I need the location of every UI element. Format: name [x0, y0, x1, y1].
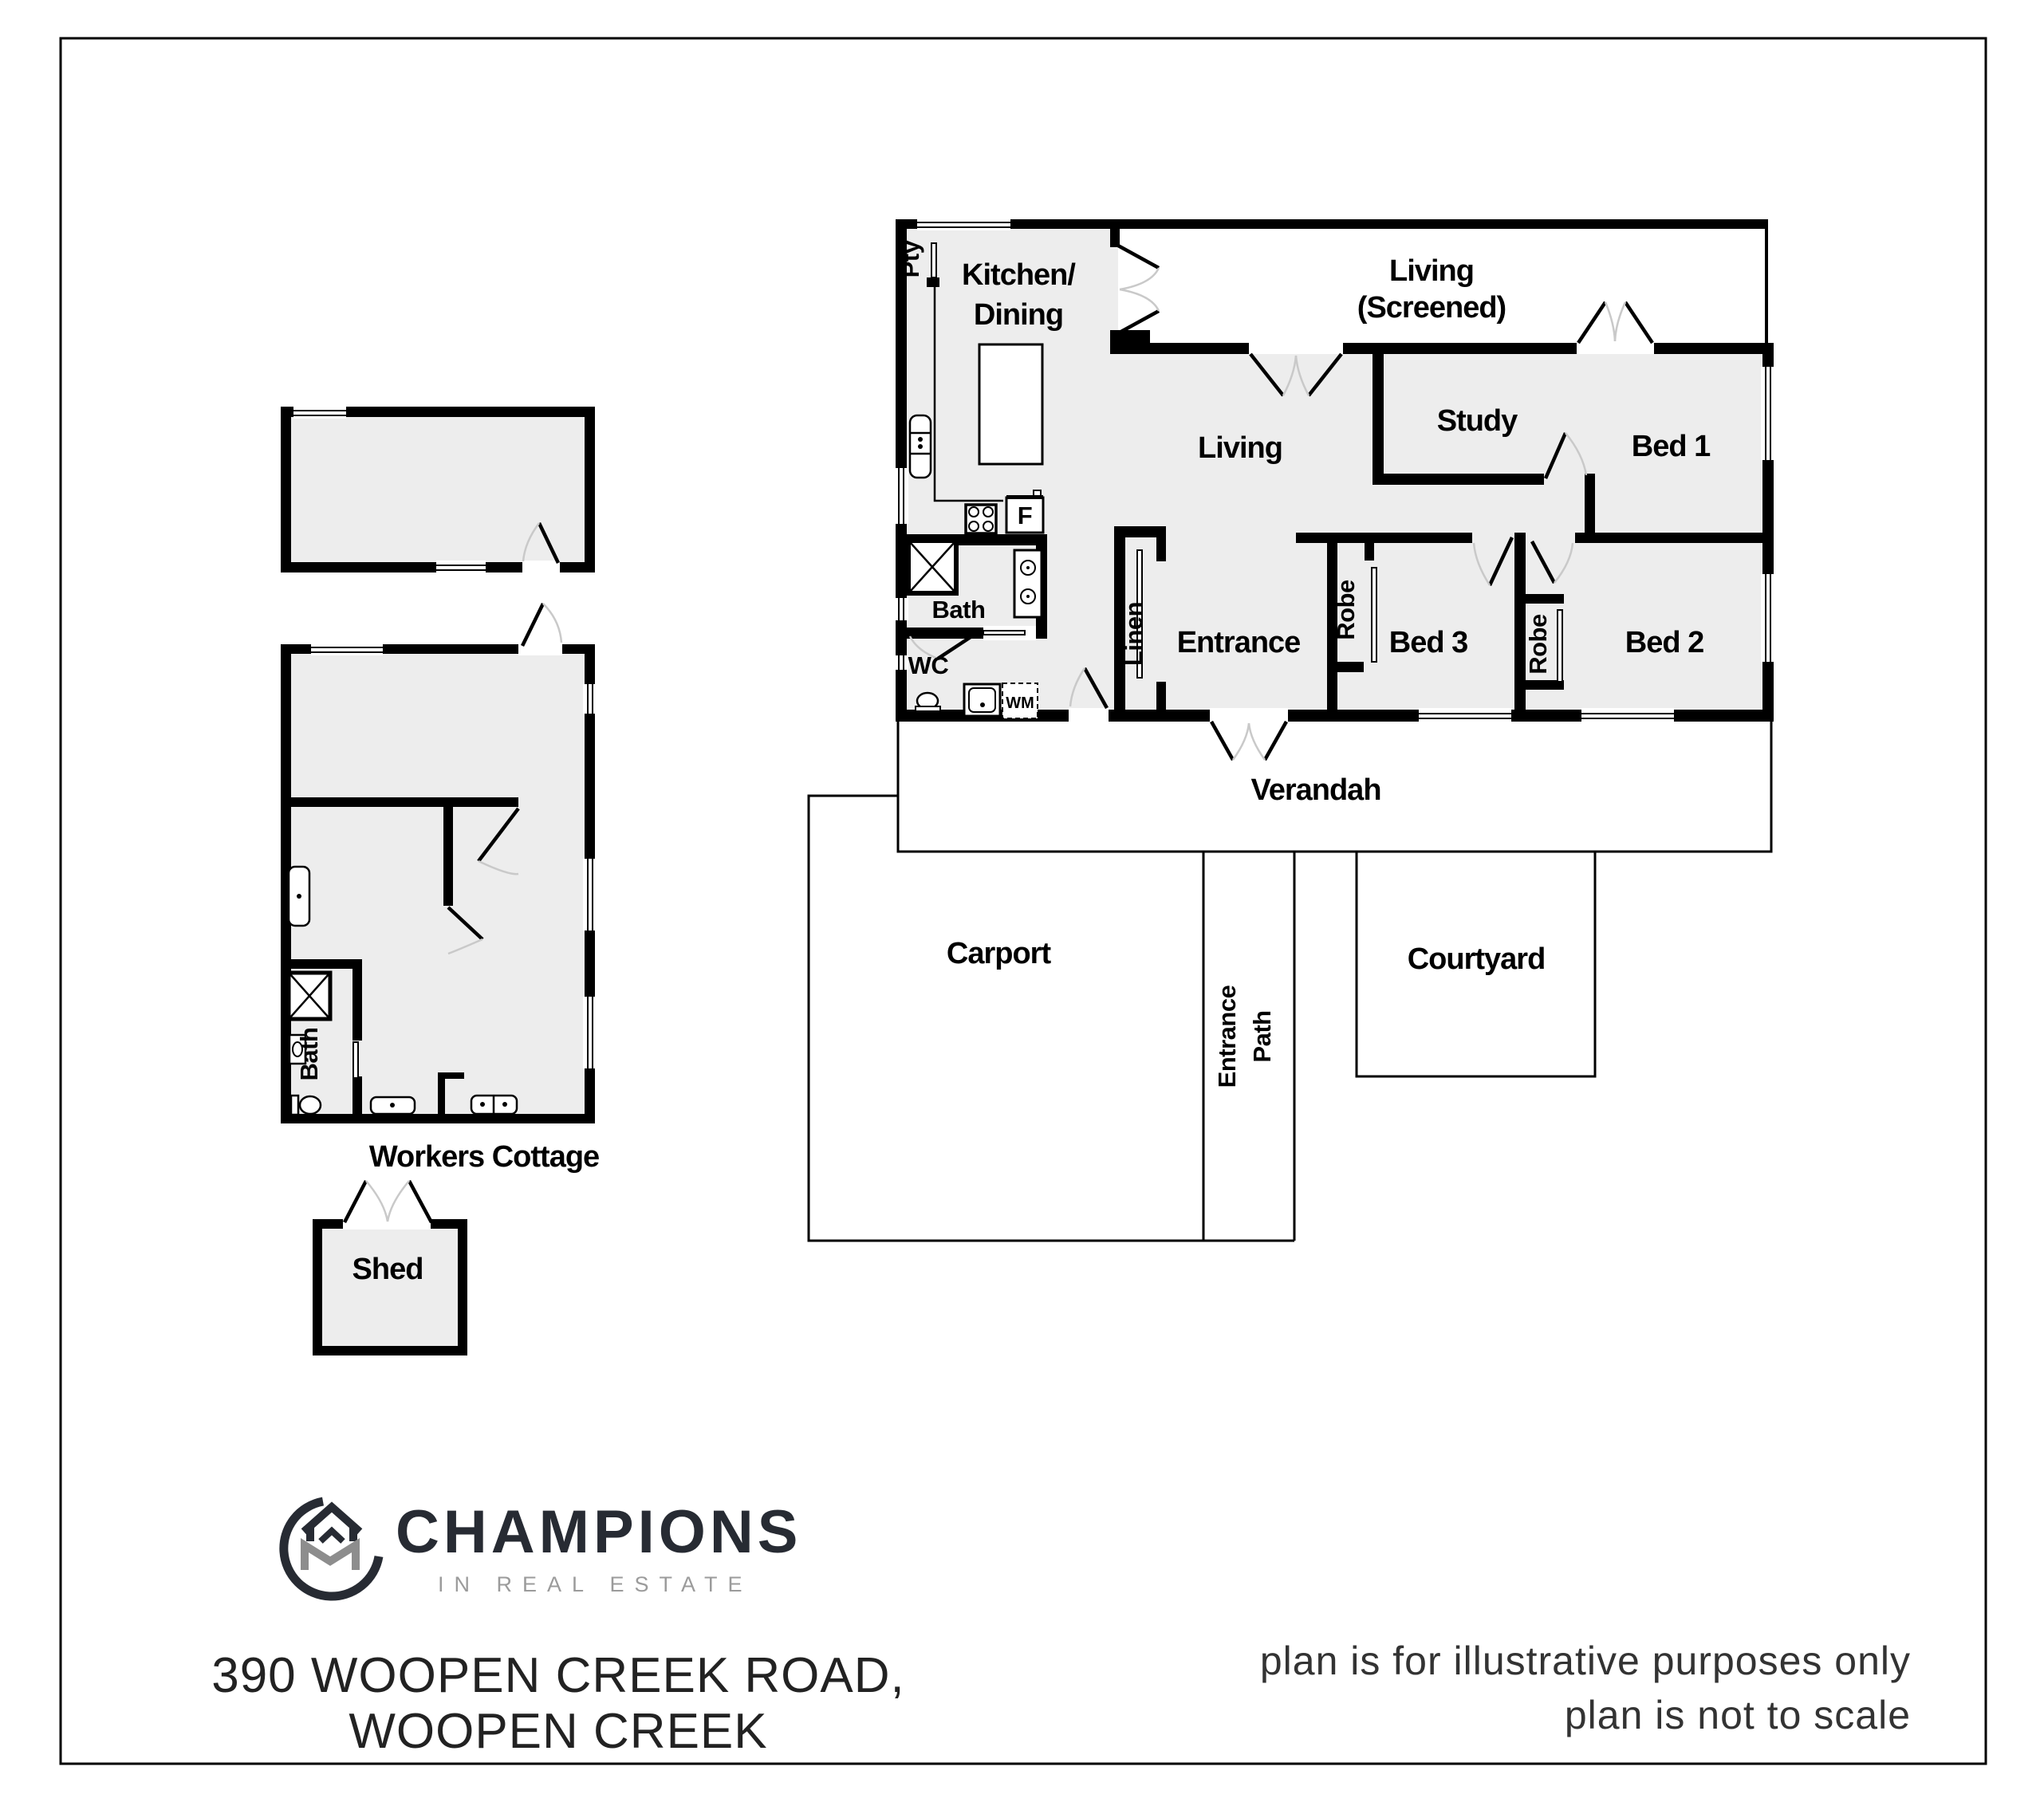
label-entrance-path-line1: Entrance [1213, 985, 1241, 1088]
laundry-sink-icon [964, 684, 1000, 716]
label-linen: Linen [1120, 602, 1148, 666]
label-cottage-bath: Bath [295, 1028, 323, 1081]
label-bath: Bath [932, 596, 986, 624]
label-bed2: Bed 2 [1625, 626, 1703, 659]
label-fridge: F [1018, 502, 1032, 529]
vanity-icon [1014, 550, 1042, 617]
floorplan-page: Pty Kitchen/ Dining Living (Screened) Li… [0, 0, 2044, 1802]
label-living: Living [1198, 431, 1282, 465]
address-line2: WOOPEN CREEK [349, 1704, 767, 1759]
brand-name: CHAMPIONS [396, 1498, 801, 1566]
cottage-wall-sink-icon [289, 867, 309, 926]
label-courtyard: Courtyard [1408, 942, 1546, 976]
label-entrance: Entrance [1177, 626, 1301, 659]
label-living-screened-line1: Living [1389, 254, 1474, 288]
disclaimer-line1: plan is for illustrative purposes only [1260, 1639, 1911, 1683]
label-pty: Pty [896, 239, 924, 277]
pantry-shelf [931, 243, 936, 277]
kitchen-door-unit [910, 415, 931, 478]
kitchen-island [979, 344, 1042, 464]
shower-icon [908, 541, 956, 593]
label-robe-bed2: Robe [1524, 614, 1552, 675]
label-bed1: Bed 1 [1632, 430, 1711, 463]
workers-cottage: Bath Workers Cottage [281, 405, 599, 1174]
cottage-structure-1 [281, 405, 595, 574]
label-carport: Carport [947, 937, 1052, 970]
label-shed: Shed [352, 1253, 423, 1286]
label-workers-cottage: Workers Cottage [369, 1140, 599, 1174]
label-wc: WC [908, 651, 949, 679]
cottage-structure-2: Bath [281, 604, 597, 1123]
disclaimer-line2: plan is not to scale [1565, 1693, 1911, 1737]
label-robe-bed3: Robe [1332, 580, 1360, 640]
cottage-shower-icon [289, 973, 330, 1019]
label-wm: WM [1006, 694, 1034, 712]
robe-bed3-shelf [1372, 568, 1376, 662]
address-line1: 390 WOOPEN CREEK ROAD, [211, 1648, 905, 1703]
stove-icon [966, 505, 996, 533]
label-kitchen-line2: Dining [974, 298, 1063, 332]
toilet-icon [916, 693, 940, 711]
brand-tagline: IN REAL ESTATE [438, 1572, 753, 1596]
label-study: Study [1437, 404, 1518, 438]
label-kitchen-line1: Kitchen/ [962, 258, 1076, 292]
label-verandah: Verandah [1250, 773, 1380, 807]
label-living-screened-line2: (Screened) [1357, 291, 1506, 325]
cottage-toilet-icon [291, 1096, 321, 1115]
robe-bed2-shelf [1558, 610, 1562, 682]
floorplan-canvas: Pty Kitchen/ Dining Living (Screened) Li… [0, 0, 2044, 1802]
label-bed3: Bed 3 [1389, 626, 1467, 659]
label-entrance-path-line2: Path [1248, 1010, 1276, 1062]
